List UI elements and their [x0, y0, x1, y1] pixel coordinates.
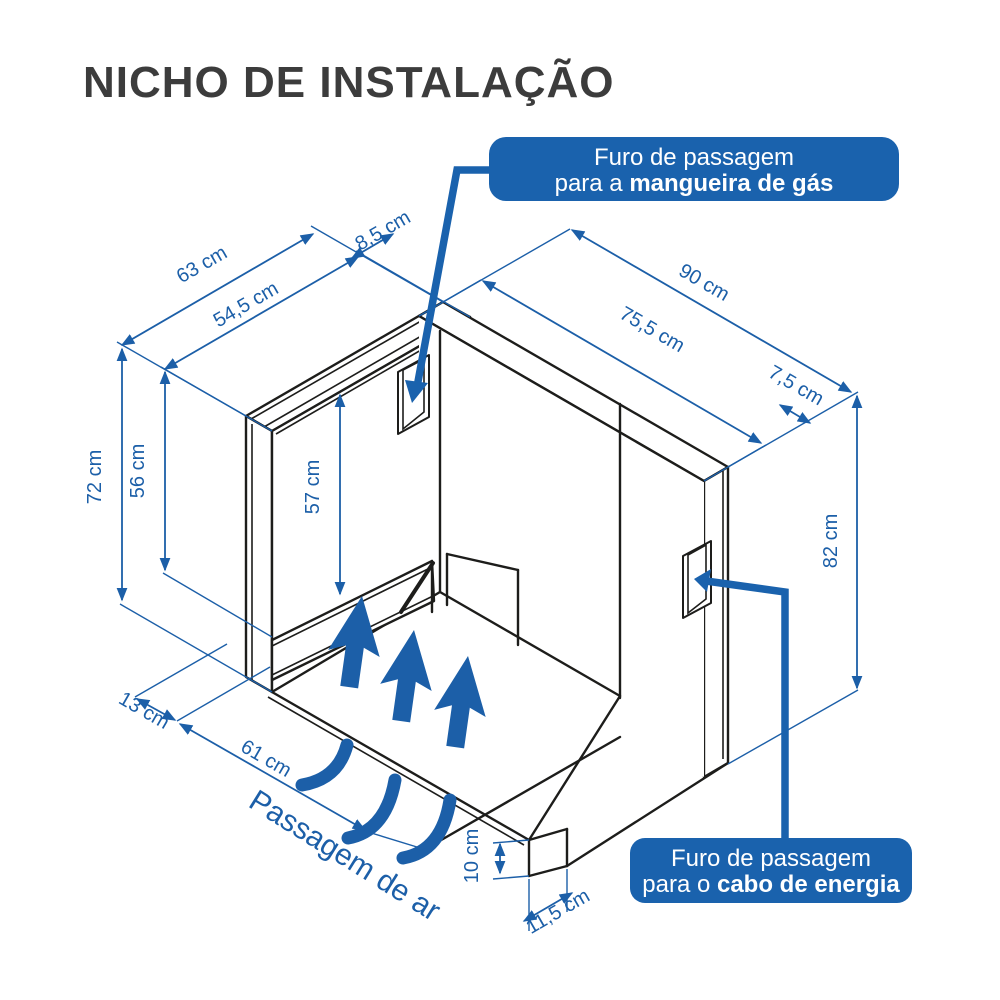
left-wall-end-face — [246, 416, 272, 692]
ext-line — [368, 832, 430, 851]
niche-structure — [246, 302, 728, 876]
air-swoosh-icon — [348, 780, 395, 838]
dim-label-75-5cm: 75,5 cm — [616, 302, 689, 357]
ext-line — [493, 876, 529, 879]
gas-callout-line2-bold: mangueira de gás — [629, 170, 833, 197]
power-callout-line2-prefix: para o — [642, 871, 717, 898]
ext-line — [135, 644, 227, 697]
right-wall-end-face — [704, 467, 728, 777]
ext-line — [493, 840, 529, 843]
power-callout-line2: para o cabo de energia — [642, 871, 900, 898]
dim-label-54-5cm: 54,5 cm — [210, 277, 283, 332]
ext-line — [161, 367, 272, 431]
dim-line-90cm — [572, 230, 851, 392]
dim-label-56cm: 56 cm — [127, 444, 149, 498]
dim-label-57cm: 57 cm — [302, 460, 324, 514]
dim-line-7-5cm — [780, 405, 810, 423]
dim-label-72cm: 72 cm — [84, 450, 106, 504]
power-callout-line2-bold: cabo de energia — [717, 871, 900, 898]
gas-callout-line2: para a mangueira de gás — [555, 170, 834, 197]
dim-label-8-5cm: 8,5 cm — [352, 206, 415, 255]
dim-label-10cm: 10 cm — [461, 829, 483, 883]
gas-callout-line1: Furo de passagem — [594, 144, 794, 171]
dim-label-7-5cm: 7,5 cm — [765, 361, 828, 410]
power-callout-line1: Furo de passagem — [671, 845, 871, 872]
ext-line — [356, 251, 470, 317]
dim-label-11-5cm: 11,5 cm — [522, 885, 593, 939]
dim-label-63cm: 63 cm — [173, 242, 231, 288]
ext-line — [177, 667, 270, 721]
dim-label-61cm: 61 cm — [237, 736, 295, 782]
dim-label-82cm: 82 cm — [820, 514, 842, 568]
page-title: NICHO DE INSTALAÇÃO — [83, 57, 615, 107]
dim-label-90cm: 90 cm — [675, 260, 733, 306]
dim-label-13cm: 13 cm — [115, 688, 173, 734]
gas-callout-line2-prefix: para a — [555, 170, 630, 197]
notch-bottom — [529, 866, 567, 876]
air-swoosh-icon — [302, 745, 347, 785]
installation-niche-diagram: NICHO DE INSTALAÇÃO — [0, 0, 1000, 1000]
ext-line — [728, 690, 858, 764]
